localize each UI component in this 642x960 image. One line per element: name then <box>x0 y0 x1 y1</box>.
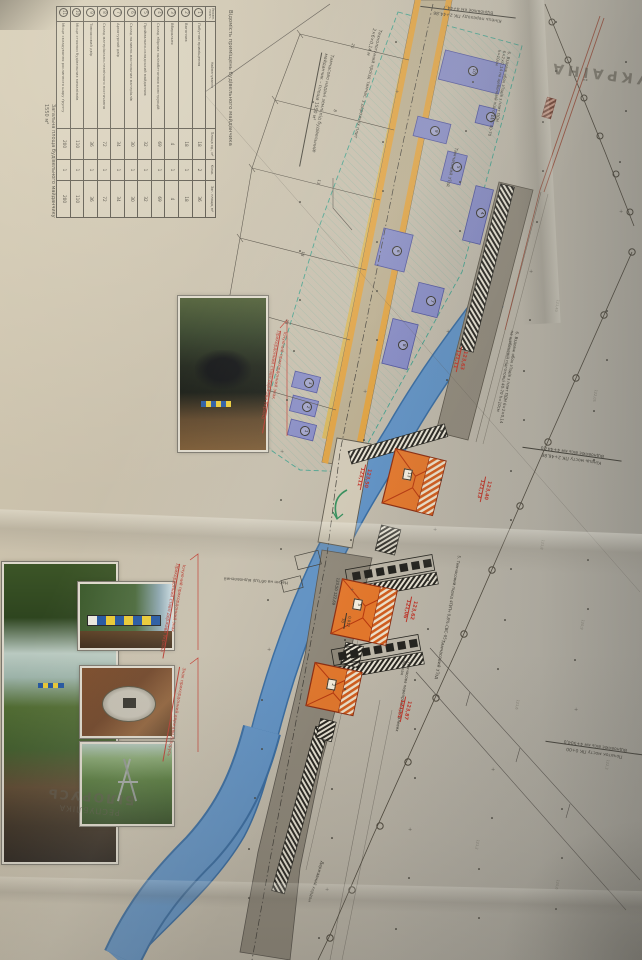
border-post-stripes <box>201 401 231 407</box>
row-value: 18 <box>192 129 206 160</box>
row-value: 1 <box>111 160 125 181</box>
row-symbol: 2 <box>179 7 193 22</box>
survey-dot <box>542 121 544 123</box>
table-row: 7Арматурний двір34134 <box>111 7 125 218</box>
survey-dot <box>587 559 589 561</box>
survey-dot <box>382 190 384 192</box>
col-header-qty: Кільк. <box>206 160 216 181</box>
row-value: 36 <box>192 181 206 218</box>
survey-dot <box>440 479 442 481</box>
row-value: 1 <box>179 160 193 181</box>
row-symbol: 10 <box>70 7 84 22</box>
table-row: 1Побутові приміщення18236 <box>192 7 206 218</box>
row-symbol: 6 <box>124 7 138 22</box>
row-value: 36 <box>84 129 98 160</box>
row-value: 18 <box>179 129 193 160</box>
pavilion-2 <box>331 579 397 645</box>
row-value: 1 <box>57 160 71 181</box>
survey-dot <box>344 688 346 690</box>
survey-dot <box>376 241 378 243</box>
survey-dot <box>382 141 384 143</box>
survey-cross: + <box>267 648 271 653</box>
survey-dot <box>561 808 563 810</box>
pavilion-number: 5 <box>352 598 363 610</box>
table-row: 11Місце складування рослинного шару ґрун… <box>57 7 71 218</box>
row-symbol: 9 <box>84 7 98 22</box>
survey-cross: + <box>325 888 329 893</box>
row-name: Вагончик <box>179 22 193 129</box>
survey-dot <box>478 917 480 919</box>
survey-dot <box>299 201 301 203</box>
row-name: Тимчасовий двір <box>84 22 98 129</box>
table-row: 6Склад паливно-мастильних матеріалів3013… <box>124 7 138 218</box>
row-value: 200 <box>57 181 71 218</box>
survey-dot <box>376 339 378 341</box>
survey-dot <box>318 937 320 939</box>
row-value: 110 <box>70 129 84 160</box>
row-name: Склад матеріально-технічного постачання <box>97 22 111 129</box>
survey-dot <box>427 628 429 630</box>
survey-cross: + <box>280 450 284 455</box>
survey-dot <box>587 608 589 610</box>
survey-dot <box>331 788 333 790</box>
survey-dot <box>478 868 480 870</box>
row-value: 72 <box>97 129 111 160</box>
row-name: Арматурний двір <box>111 22 125 129</box>
survey-dot <box>523 419 525 421</box>
survey-dot <box>593 410 595 412</box>
survey-cross: + <box>619 210 623 215</box>
row-value: 34 <box>111 181 125 218</box>
survey-cross: + <box>529 270 533 275</box>
survey-dot <box>248 897 250 899</box>
survey-dot <box>606 359 608 361</box>
row-symbol: 4 <box>151 7 165 22</box>
table-row: 4Склад збірних залізобетонних конструкці… <box>151 7 165 218</box>
survey-dot <box>248 848 250 850</box>
row-value: 4 <box>165 181 179 218</box>
survey-dot <box>280 548 282 550</box>
survey-dot <box>510 519 512 521</box>
table-row: 10Місце стоянки будівельних механізмів11… <box>70 7 84 218</box>
survey-dot <box>465 130 467 132</box>
marker-ring <box>102 686 156 722</box>
survey-dot <box>280 499 282 501</box>
facilities-table: Умовн. позн. Найменування Площа од., м² … <box>56 6 216 206</box>
table-header-row: Умовн. позн. Найменування Площа од., м² … <box>206 7 216 218</box>
table-row: 9Тимчасовий двір36136 <box>84 7 98 218</box>
survey-dot <box>459 181 461 183</box>
survey-dot <box>459 230 461 232</box>
col-header-unit-area: Площа од., м² <box>206 129 216 160</box>
row-value: 1 <box>70 160 84 181</box>
survey-dot <box>427 579 429 581</box>
survey-dot <box>414 679 416 681</box>
survey-dot <box>446 379 448 381</box>
border-post-stripes <box>87 615 161 626</box>
survey-dot <box>331 837 333 839</box>
survey-dot <box>561 857 563 859</box>
red-structure <box>542 97 556 119</box>
survey-dot <box>299 299 301 301</box>
row-value: 32 <box>138 129 152 160</box>
survey-dot <box>395 928 397 930</box>
row-value: 34 <box>111 129 125 160</box>
table-row: 8Склад матеріально-технічного постачання… <box>97 7 111 218</box>
survey-dot <box>574 659 576 661</box>
row-value: 1 <box>165 160 179 181</box>
survey-dot <box>542 170 544 172</box>
survey-cross: + <box>433 528 437 533</box>
row-value: 30 <box>124 129 138 160</box>
survey-dot <box>261 699 263 701</box>
survey-dot <box>491 817 493 819</box>
row-name: Склад збірних залізобетонних конструкцій <box>151 22 165 129</box>
row-name: Місце стоянки будівельних механізмів <box>70 22 84 129</box>
survey-dot <box>395 41 397 43</box>
marker-center <box>123 698 136 708</box>
survey-dot <box>363 439 365 441</box>
survey-dot <box>414 728 416 730</box>
row-value: 1 <box>84 160 98 181</box>
row-value: 30 <box>124 181 138 218</box>
row-symbol: 1 <box>192 7 206 22</box>
row-value: 2 <box>192 160 206 181</box>
row-symbol: 8 <box>97 7 111 22</box>
table-row: 3Вбиральня414 <box>165 7 179 218</box>
row-value: 1 <box>138 160 152 181</box>
survey-cross: + <box>574 708 578 713</box>
survey-dot <box>408 877 410 879</box>
survey-dot <box>440 430 442 432</box>
survey-cross: + <box>491 768 495 773</box>
col-header-name: Найменування <box>206 22 216 129</box>
col-header-symbol: Умовн. позн. <box>206 7 216 22</box>
survey-dot <box>529 319 531 321</box>
survey-dot <box>414 777 416 779</box>
row-value: 1 <box>97 160 111 181</box>
survey-dot <box>267 599 269 601</box>
survey-dot <box>472 81 474 83</box>
tripod-crossbar <box>118 781 138 783</box>
survey-dot <box>555 21 557 23</box>
site-plan-photo: Умовн. позн. Найменування Площа од., м² … <box>0 0 642 960</box>
row-value: 72 <box>97 181 111 218</box>
river-slope-mark: 0,012 70 <box>339 612 352 630</box>
row-name: Побутові приміщення <box>192 22 206 129</box>
row-value: 69 <box>151 129 165 160</box>
survey-dot <box>497 668 499 670</box>
survey-dot <box>286 399 288 401</box>
row-value: 18 <box>179 181 193 218</box>
survey-dot <box>555 908 557 910</box>
pavilion-number: 13 <box>402 468 413 480</box>
survey-dot <box>510 568 512 570</box>
survey-dot <box>261 748 263 750</box>
pavilion-number: 2 <box>326 678 337 690</box>
row-name: Місце складування рослинного шару ґрунту <box>57 22 71 129</box>
survey-cross: + <box>446 330 450 335</box>
row-name: Склад паливно-мастильних матеріалів <box>124 22 138 129</box>
survey-dot <box>625 110 627 112</box>
table-footer-note: Загальна площа будівельного майданчику 1… <box>43 104 56 226</box>
survey-dot <box>344 639 346 641</box>
survey-dot <box>625 61 627 63</box>
table-title: Відомість приміщень будівельного майданч… <box>226 10 233 150</box>
tunnel-shadow <box>195 350 250 390</box>
table-row: 2Вагончик18118 <box>179 7 193 218</box>
survey-dot <box>523 370 525 372</box>
survey-cross: + <box>395 90 399 95</box>
survey-dot <box>619 161 621 163</box>
row-symbol: 7 <box>111 7 125 22</box>
survey-cross: + <box>363 390 367 395</box>
survey-dot <box>350 539 352 541</box>
row-name: Приймально-складський майданчик <box>138 22 152 129</box>
survey-dot <box>536 221 538 223</box>
table-row: 5Приймально-складський майданчик32132 <box>138 7 152 218</box>
survey-dot <box>293 350 295 352</box>
row-value: 36 <box>84 181 98 218</box>
row-value: 32 <box>138 181 152 218</box>
survey-dot <box>606 310 608 312</box>
col-header-total-area: Заг. площа, м² <box>206 181 216 218</box>
border-post-stripes <box>38 683 64 688</box>
row-value: 110 <box>70 181 84 218</box>
survey-dot <box>510 470 512 472</box>
row-value: 200 <box>57 129 71 160</box>
survey-dot <box>376 290 378 292</box>
survey-cross: + <box>350 588 354 593</box>
dim-label: 8 <box>333 109 338 113</box>
row-value: 1 <box>124 160 138 181</box>
row-name: Вбиральня <box>165 22 179 129</box>
row-symbol: 5 <box>138 7 152 22</box>
survey-cross: + <box>408 828 412 833</box>
photo-bridge-site <box>178 296 268 452</box>
row-value: 4 <box>165 129 179 160</box>
photo-geodetic-marker <box>80 666 174 738</box>
row-value: 1 <box>151 160 165 181</box>
survey-dot <box>254 797 256 799</box>
row-symbol: 3 <box>165 7 179 22</box>
row-symbol: 11 <box>57 7 71 22</box>
survey-dot <box>504 619 506 621</box>
row-value: 69 <box>151 181 165 218</box>
